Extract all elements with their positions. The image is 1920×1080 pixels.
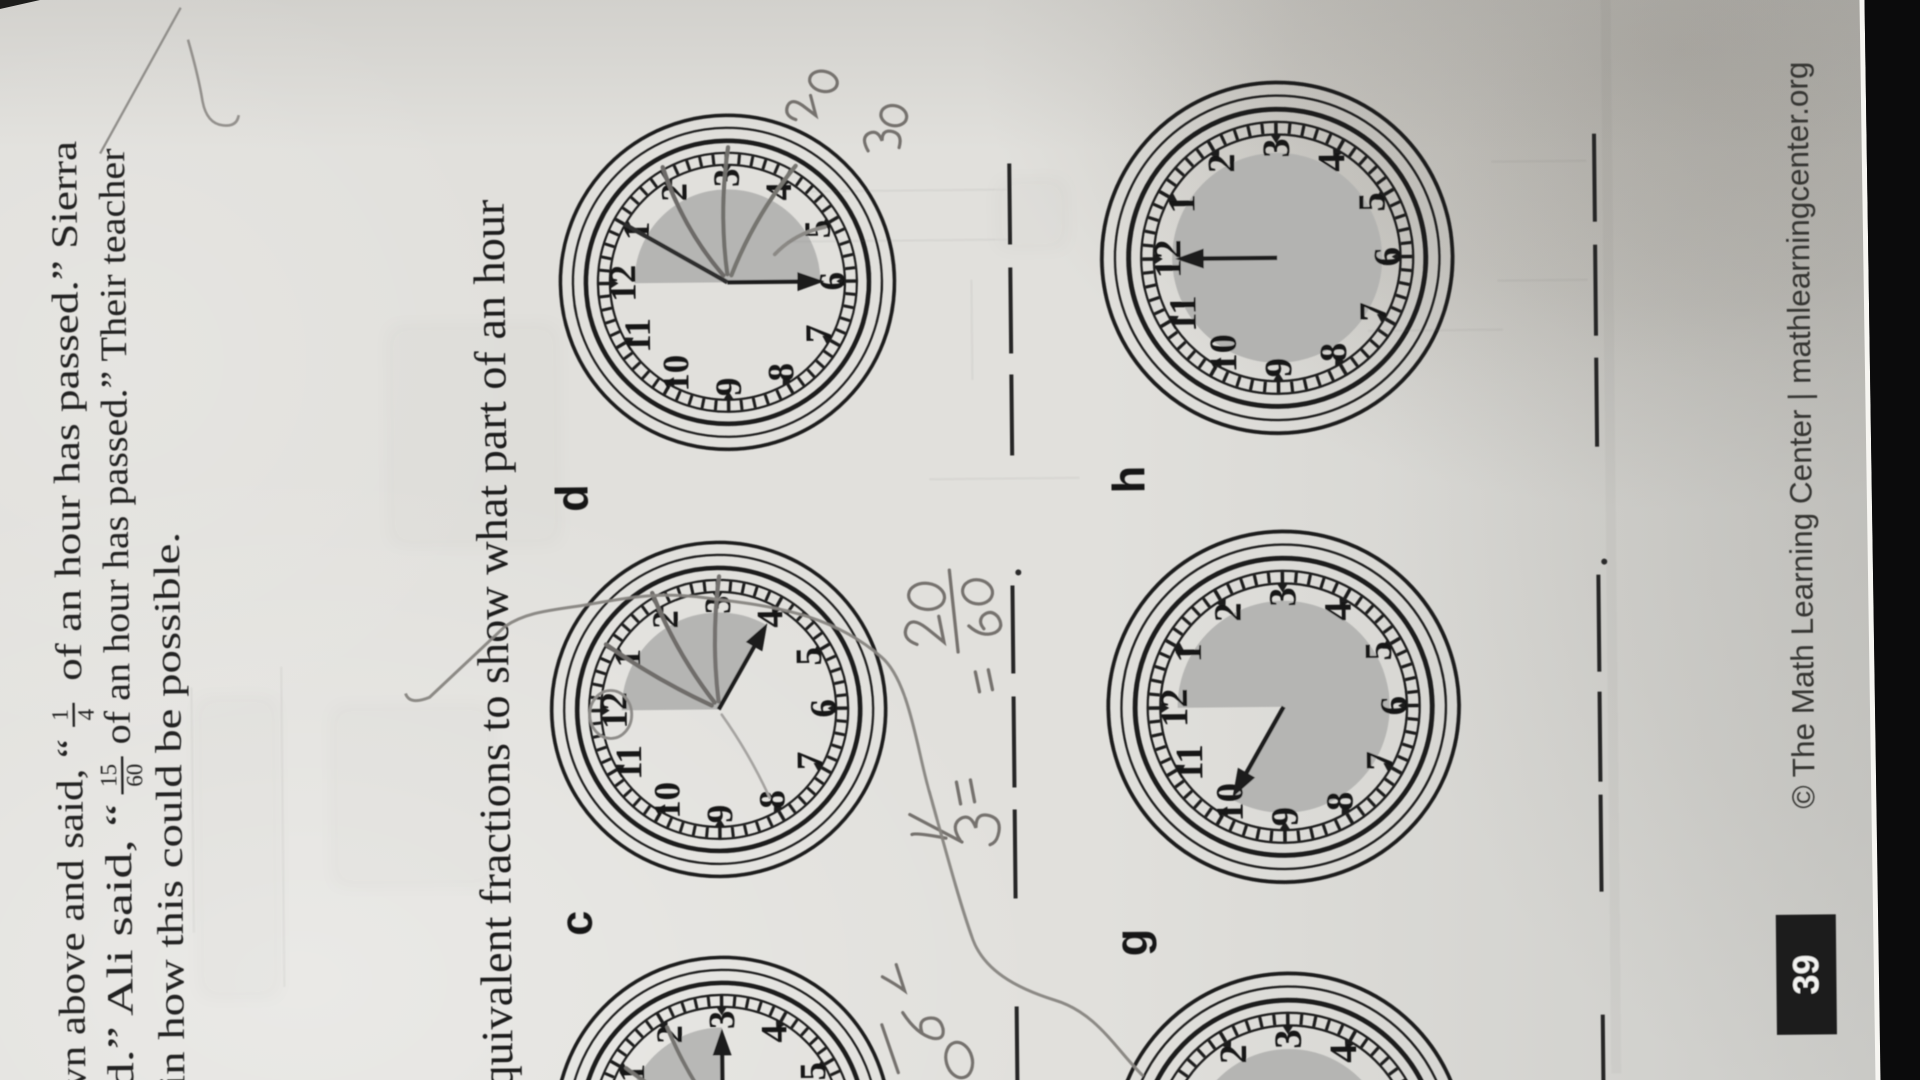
svg-text:of an hour has passed.” Sierra: of an hour has passed.” Sierra [43,141,89,681]
svg-text:h: h [1103,466,1154,494]
svg-text:60: 60 [122,764,147,787]
svg-text:of an hour has passed.” Their: of an hour has passed.” Their teacher [91,148,138,744]
svg-text:1: 1 [48,709,73,721]
svg-text:© The Math Learning Center |: © The Math Learning Center | mathlearnin… [1778,61,1821,808]
svg-text:4: 4 [74,708,99,720]
svg-text:g: g [1106,929,1157,957]
svg-text:15: 15 [96,764,121,787]
svg-text:39: 39 [1785,954,1826,994]
svg-text:in how this could be possible.: in how this could be possible. [146,532,193,1080]
svg-text:d.” Ali said, “: d.” Ali said, “ [98,803,142,1080]
svg-text:c: c [551,911,602,937]
svg-text:vn above and said, “: vn above and said, “ [49,739,93,1080]
